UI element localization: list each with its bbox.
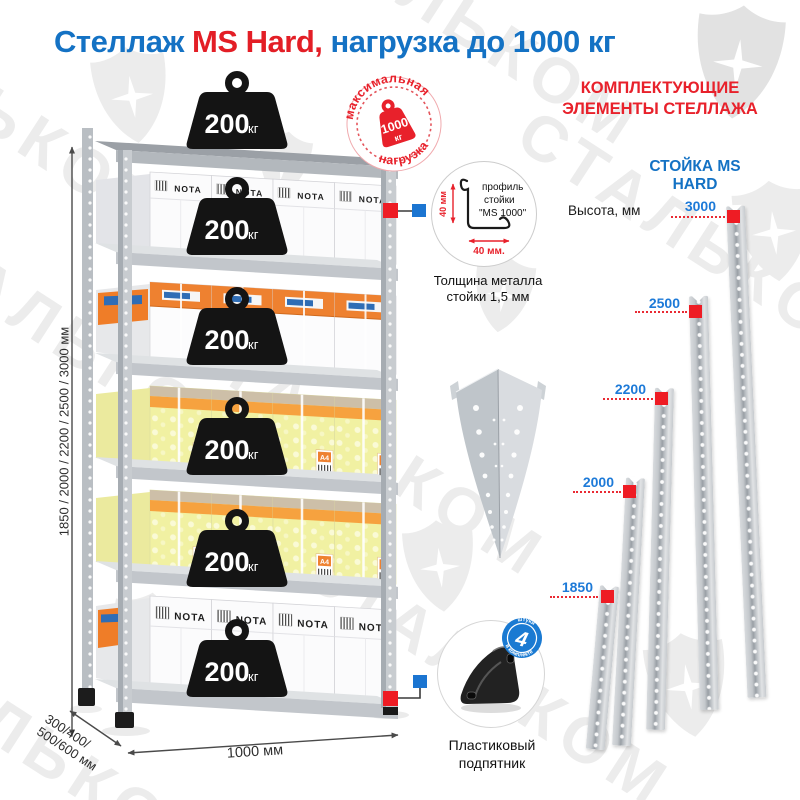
box-brand-label: NOTA: [297, 190, 324, 202]
box-brand-label: NOTA: [174, 611, 206, 624]
corner-post-photo: [446, 360, 550, 565]
post-front-right: [381, 168, 398, 715]
kit-count-badge: штуки в комплекте 4: [500, 616, 544, 660]
marker-3000: [727, 210, 740, 223]
profile-line2: стойки: [484, 195, 515, 206]
post-back-left: [78, 128, 95, 706]
leader-dots-2200: [603, 398, 653, 400]
post-height-label-2500: 2500: [634, 295, 680, 311]
leader-dots-1850: [550, 596, 598, 598]
weight-value: 200: [204, 109, 249, 139]
profile-line3: "MS 1000": [479, 208, 527, 219]
weight-value: 200: [204, 325, 249, 355]
profile-dim-vertical: 40 мм: [438, 191, 448, 217]
box-brand-label: NOTA: [297, 618, 329, 631]
leader-dots-2000: [573, 491, 621, 493]
post-height-label-1850: 1850: [549, 579, 593, 595]
components-heading: КОМПЛЕКТУЮЩИЕ ЭЛЕМЕНТЫ СТЕЛЛАЖА: [540, 78, 780, 119]
box-brand-label: NOTA: [174, 183, 201, 195]
weight-value: 200: [204, 547, 249, 577]
paper-size-label: A4: [320, 455, 329, 463]
weight-unit: кг: [248, 669, 259, 684]
weight-value: 200: [204, 435, 249, 465]
height-dimension-label: 1850 / 2000 / 2200 / 2500 / 3000 мм: [57, 272, 72, 592]
weight-value: 200: [204, 215, 249, 245]
thickness-line2: стойки 1,5 мм: [424, 289, 552, 305]
page-title: Стеллаж MS Hard, нагрузка до 1000 кг: [54, 24, 615, 60]
profile-line1: профиль: [482, 181, 523, 193]
infographic: СТАЛЬКОМ СТАЛЬКОМ СТАЛЬКОМ СТАЛЬКОМ СТАЛ…: [0, 0, 800, 800]
weight-unit: кг: [248, 121, 259, 136]
weight-unit: кг: [248, 337, 259, 352]
profile-connector: [383, 203, 426, 218]
marker-1850: [601, 590, 614, 603]
weight-unit: кг: [248, 559, 259, 574]
shelving-unit-illustration: NOTA NOTA NOTA NOTA A4 A4 A4 A4 A4 A4 A4…: [40, 70, 448, 782]
leader-dots-2500: [635, 311, 687, 313]
thickness-line1: Толщина металла: [424, 273, 552, 289]
title-model: MS Hard,: [192, 24, 322, 59]
leader-dots-3000: [671, 216, 725, 218]
title-lead: Стеллаж: [54, 24, 192, 59]
weight-unit: кг: [248, 227, 259, 242]
foot-caption-line1: Пластиковый: [426, 737, 558, 755]
weight-value: 200: [204, 657, 249, 687]
weight-unit: кг: [248, 447, 259, 462]
profile-dim-horizontal: 40 мм.: [473, 246, 505, 257]
thickness-caption: Толщина металла стойки 1,5 мм: [424, 273, 552, 306]
paper-size-label: A4: [320, 559, 329, 567]
plastic-foot-caption: Пластиковый подпятник: [426, 737, 558, 772]
post-height-label-2200: 2200: [602, 381, 646, 397]
post-height-label-3000: 3000: [670, 198, 716, 214]
foot-caption-line2: подпятник: [426, 755, 558, 773]
title-tail: нагрузка до 1000 кг: [322, 24, 615, 59]
marker-2000: [623, 485, 636, 498]
components-heading-line1: КОМПЛЕКТУЮЩИЕ: [540, 78, 780, 99]
height-axis-label: Высота, мм: [568, 203, 640, 218]
weight-200kg: 200кг: [187, 75, 288, 150]
post-subheading: СТОЙКА MS HARD: [625, 158, 765, 194]
marker-2500: [689, 305, 702, 318]
post-2000: [612, 478, 645, 747]
profile-diagram: 40 мм 40 мм. профиль стойки "MS 1000": [431, 161, 537, 267]
post-height-label-2000: 2000: [572, 474, 614, 490]
components-heading-line2: ЭЛЕМЕНТЫ СТЕЛЛАЖА: [540, 99, 780, 120]
marker-2200: [655, 392, 668, 405]
